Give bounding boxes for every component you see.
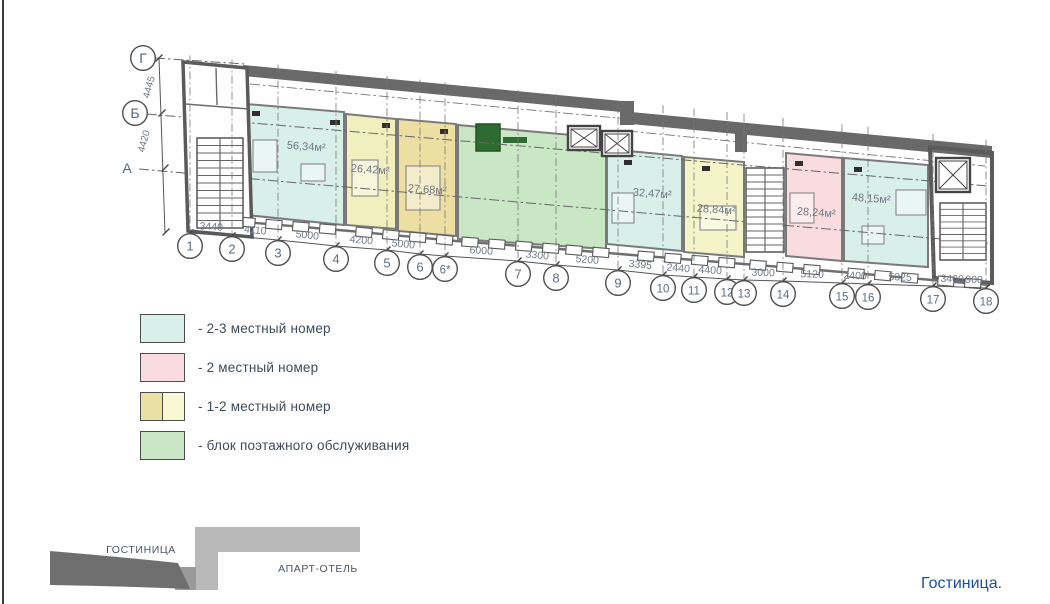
grid-axis-letter: А bbox=[122, 160, 132, 176]
window bbox=[319, 224, 336, 234]
dimension-value: 5000 bbox=[295, 228, 320, 242]
window bbox=[265, 219, 282, 229]
key-plan-hotel-shape bbox=[50, 551, 190, 589]
grid-axis-number: 11 bbox=[688, 286, 700, 298]
legend-swatch-1-2 bbox=[140, 392, 185, 421]
dimension-value: 5120 bbox=[800, 268, 824, 281]
furniture bbox=[862, 226, 884, 244]
grid-axis-number: 16 bbox=[862, 293, 875, 305]
grid-axis-number: 18 bbox=[980, 297, 993, 309]
dimension-value: 4110 bbox=[243, 224, 267, 238]
legend-swatch-half bbox=[163, 393, 184, 420]
legend-item-2: - 2 местный номер bbox=[140, 353, 409, 382]
dimension-value: 2400 bbox=[843, 270, 867, 283]
grid-axis-number: 3 bbox=[274, 246, 281, 261]
furniture bbox=[253, 140, 277, 172]
grid-axis-number: 2 bbox=[228, 242, 235, 257]
service-counter bbox=[503, 137, 527, 143]
dimension-value-vertical: 4420 bbox=[136, 129, 152, 154]
grid-axis-number: 6* bbox=[440, 265, 451, 277]
furniture bbox=[301, 164, 325, 181]
dimension-value: 5325 bbox=[888, 271, 912, 284]
dimension-value: 900 bbox=[965, 274, 983, 286]
dimension-value: 6000 bbox=[469, 244, 493, 258]
dimension-value: 3300 bbox=[525, 248, 550, 262]
grid-axis-number: 7 bbox=[514, 267, 521, 282]
fixture bbox=[440, 129, 448, 134]
legend-label: - 2-3 местный номер bbox=[198, 321, 331, 336]
dimension-value: 5200 bbox=[575, 253, 599, 267]
fixture bbox=[252, 111, 260, 116]
floor-plan: 1234566*78910111213141516171834404110500… bbox=[0, 0, 1050, 604]
wall-stub bbox=[735, 132, 747, 152]
dimension-value: 5000 bbox=[391, 237, 416, 251]
dimension-value: 3400 bbox=[940, 273, 964, 286]
legend-item-2-3: - 2-3 местный номер bbox=[140, 314, 409, 343]
fixture bbox=[702, 166, 710, 171]
dimension-value-vertical: 4445 bbox=[141, 75, 157, 100]
legend-item-1-2: - 1-2 местный номер bbox=[140, 392, 409, 421]
grid-axis-letter: Б bbox=[130, 105, 139, 121]
dimension-tick bbox=[163, 229, 170, 236]
key-plan-apart-hotel-shape bbox=[195, 527, 360, 590]
key-plan: ГОСТИНИЦА АПАРТ-ОТЕЛЬ bbox=[40, 515, 380, 600]
grid-axis-number: 5 bbox=[383, 256, 390, 271]
dimension-value: 4400 bbox=[698, 264, 722, 277]
exterior-wall-top bbox=[620, 111, 992, 158]
grid-axis-number: 15 bbox=[836, 292, 849, 304]
dimension-value: 3000 bbox=[751, 267, 775, 280]
grid-axis-number: 17 bbox=[927, 295, 940, 307]
grid-axis-letter: Г bbox=[139, 50, 147, 66]
grid-axis-number: 1 bbox=[186, 239, 193, 254]
grid-axis-number: 13 bbox=[738, 289, 751, 301]
legend-item-service: - блок поэтажного обслуживания bbox=[140, 431, 409, 460]
dimension-value: 3440 bbox=[199, 220, 223, 234]
furniture bbox=[896, 190, 926, 215]
fixture bbox=[795, 161, 803, 166]
legend-label: - 2 местный номер bbox=[198, 360, 318, 375]
legend-label: - блок поэтажного обслуживания bbox=[198, 438, 409, 453]
grid-axis-number: 9 bbox=[614, 276, 621, 291]
service-lift bbox=[476, 124, 500, 151]
grid-axis-number: 14 bbox=[777, 290, 790, 302]
legend-swatch-2-3 bbox=[140, 314, 185, 343]
legend: - 2-3 местный номер - 2 местный номер - … bbox=[140, 314, 409, 460]
dimension-value: 3395 bbox=[628, 258, 653, 272]
window bbox=[777, 262, 794, 272]
sheet-caption: Гостиница. bbox=[921, 575, 1002, 593]
drawing-sheet: 1234566*78910111213141516171834404110500… bbox=[0, 0, 1050, 604]
legend-swatch-2 bbox=[140, 353, 185, 382]
fixture bbox=[624, 160, 632, 165]
furniture bbox=[612, 193, 634, 223]
wall-line bbox=[216, 68, 217, 105]
fixture bbox=[330, 120, 340, 125]
grid-axis-number: 6 bbox=[416, 260, 423, 275]
legend-swatch-service bbox=[140, 431, 185, 460]
key-plan-apart-hotel-label: АПАРТ-ОТЕЛЬ bbox=[278, 563, 358, 575]
fixture bbox=[382, 123, 390, 128]
dimension-line-vertical bbox=[159, 58, 165, 233]
grid-axis-number: 10 bbox=[657, 284, 670, 296]
dimension-value: 2440 bbox=[666, 262, 690, 276]
legend-label: - 1-2 местный номер bbox=[198, 399, 331, 414]
grid-axis-number: 4 bbox=[332, 252, 339, 267]
dimension-value: 4200 bbox=[349, 234, 373, 248]
grid-axis-number: 8 bbox=[552, 271, 559, 286]
key-plan-hotel-label: ГОСТИНИЦА bbox=[106, 544, 176, 556]
fixture bbox=[854, 167, 862, 172]
window bbox=[436, 235, 453, 245]
legend-swatch-half bbox=[141, 393, 163, 420]
